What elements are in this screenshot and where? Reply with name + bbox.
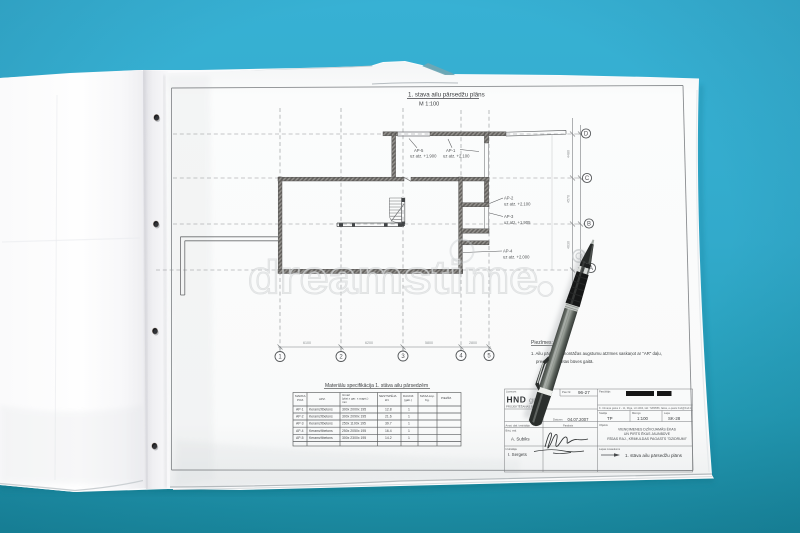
svg-text:04.07.2007: 04.07.2007 bbox=[568, 417, 590, 422]
svg-text:39.7: 39.7 bbox=[385, 422, 392, 426]
svg-text:Lapa: Lapa bbox=[664, 411, 670, 415]
svg-text:1: 1 bbox=[408, 422, 410, 426]
svg-text:Objekts: Objekts bbox=[599, 423, 608, 427]
svg-text:Keramzītbetons: Keramzītbetons bbox=[309, 408, 333, 412]
svg-text:uz atz. +1.905: uz atz. +1.905 bbox=[504, 220, 531, 225]
svg-text:12.8: 12.8 bbox=[385, 408, 392, 412]
svg-text:96-27: 96-27 bbox=[578, 390, 590, 395]
svg-text:1: 1 bbox=[408, 408, 410, 412]
svg-text:Kg.: Kg. bbox=[425, 398, 430, 402]
svg-text:(gab.): (gab.) bbox=[404, 398, 412, 402]
svg-text:AP-1: AP-1 bbox=[446, 148, 456, 153]
svg-text:TP: TP bbox=[607, 416, 613, 421]
svg-text:Stadija: Stadija bbox=[599, 411, 607, 415]
svg-text:250x 2050x 195: 250x 2050x 195 bbox=[342, 429, 366, 433]
svg-text:Amat. dati. izstrādāja: Amat. dati. izstrādāja bbox=[506, 423, 531, 427]
svg-text:RĪGAS RAJ., KRIMULDAS PAGASTS: RĪGAS RAJ., KRIMULDAS PAGASTS "DZIDRUMI" bbox=[607, 437, 687, 441]
svg-text:4570: 4570 bbox=[567, 195, 571, 203]
svg-text:14.2: 14.2 bbox=[385, 436, 392, 440]
svg-text:B: B bbox=[587, 222, 591, 228]
svg-text:I. Sergets: I. Sergets bbox=[508, 452, 528, 457]
svg-text:AP-2: AP-2 bbox=[504, 196, 514, 201]
svg-text:uz atz. +2.100: uz atz. +2.100 bbox=[443, 154, 470, 159]
svg-text:UN PIRTS ĒKAS JAUNBŪVE: UN PIRTS ĒKAS JAUNBŪVE bbox=[624, 432, 671, 436]
svg-text:Keramzītbetons: Keramzītbetons bbox=[309, 422, 333, 426]
svg-text:Licences: Licences bbox=[506, 390, 517, 394]
svg-text:A. Subiks: A. Subiks bbox=[511, 437, 530, 442]
svg-text:1: 1 bbox=[408, 429, 410, 433]
svg-text:1: 1 bbox=[408, 436, 410, 440]
svg-text:Keramzītbetons: Keramzītbetons bbox=[309, 415, 333, 419]
svg-text:Būvj. vad.: Būvj. vad. bbox=[506, 429, 518, 433]
svg-text:300x 2300x 195: 300x 2300x 195 bbox=[342, 436, 366, 440]
svg-text:AP-5: AP-5 bbox=[414, 148, 424, 153]
svg-text:4630: 4630 bbox=[567, 241, 571, 249]
svg-text:1: 1 bbox=[408, 415, 410, 419]
svg-text:Datums: Datums bbox=[553, 418, 563, 422]
svg-text:AP-1: AP-1 bbox=[296, 408, 304, 412]
svg-text:AP-3: AP-3 bbox=[296, 422, 304, 426]
svg-text:Keramzītbetons: Keramzītbetons bbox=[309, 429, 333, 433]
svg-text:M 1:100: M 1:100 bbox=[419, 102, 439, 108]
svg-text:kN: kN bbox=[385, 398, 389, 402]
svg-text:6100: 6100 bbox=[303, 341, 311, 345]
svg-text:dreamstime: dreamstime bbox=[248, 251, 538, 303]
svg-text:SK-28: SK-28 bbox=[668, 416, 681, 421]
svg-text:1:100: 1:100 bbox=[637, 416, 649, 421]
svg-text:K. Ulmaņa gatve 2 - 11, Rīga,: K. Ulmaņa gatve 2 - 11, Rīga, LV-1004, t… bbox=[599, 406, 692, 410]
svg-text:Materiālu specifikācija 1. stā: Materiālu specifikācija 1. stāva ailu pā… bbox=[325, 383, 428, 389]
svg-text:HND: HND bbox=[507, 395, 527, 405]
svg-text:Pas Nr.: Pas Nr. bbox=[562, 390, 571, 394]
svg-text:1. stava ailu pārsedžu plāns: 1. stava ailu pārsedžu plāns bbox=[408, 92, 485, 99]
svg-text:AP-2: AP-2 bbox=[296, 415, 304, 419]
svg-text:250x 1100x 195: 250x 1100x 195 bbox=[342, 422, 366, 426]
svg-text:Paraksts: Paraksts bbox=[563, 423, 574, 427]
svg-text:Mērogs: Mērogs bbox=[632, 411, 641, 415]
svg-text:AP-5: AP-5 bbox=[296, 436, 304, 440]
svg-text:Pasūtītājs: Pasūtītājs bbox=[599, 390, 611, 394]
svg-text:APZ.: APZ. bbox=[319, 397, 326, 401]
svg-text:1. stāva ailu pārsedžu plāns: 1. stāva ailu pārsedžu plāns bbox=[625, 453, 683, 458]
svg-text:VIENĢIMENES DZĪVOJAMĀS ĒKAS: VIENĢIMENES DZĪVOJAMĀS ĒKAS bbox=[618, 428, 677, 432]
svg-text:C: C bbox=[585, 176, 590, 182]
svg-text:5800: 5800 bbox=[425, 341, 433, 345]
svg-text:D: D bbox=[584, 132, 589, 138]
svg-text:300x 2090x 195: 300x 2090x 195 bbox=[342, 415, 366, 419]
svg-text:2800: 2800 bbox=[469, 341, 477, 345]
svg-text:mm: mm bbox=[342, 400, 347, 404]
svg-text:Keramzītbetons: Keramzītbetons bbox=[309, 436, 333, 440]
svg-text:uz atz. +2.100: uz atz. +2.100 bbox=[504, 201, 531, 206]
svg-text:4480: 4480 bbox=[567, 150, 571, 158]
svg-text:300x 2000x 195: 300x 2000x 195 bbox=[342, 408, 366, 412]
svg-text:21.6: 21.6 bbox=[385, 415, 392, 419]
svg-text:POZ.: POZ. bbox=[297, 398, 304, 402]
svg-text:AP-3: AP-3 bbox=[504, 214, 514, 219]
svg-text:PIEZĪM.: PIEZĪM. bbox=[441, 396, 452, 400]
svg-text:Lapas nosaukums: Lapas nosaukums bbox=[599, 447, 621, 451]
svg-text:Izstrādāja: Izstrādāja bbox=[506, 447, 518, 451]
svg-text:16.4: 16.4 bbox=[385, 429, 392, 433]
svg-text:AP-4: AP-4 bbox=[296, 429, 304, 433]
svg-text:uz atz. +1.900: uz atz. +1.900 bbox=[410, 154, 437, 159]
svg-text:6200: 6200 bbox=[365, 341, 373, 345]
